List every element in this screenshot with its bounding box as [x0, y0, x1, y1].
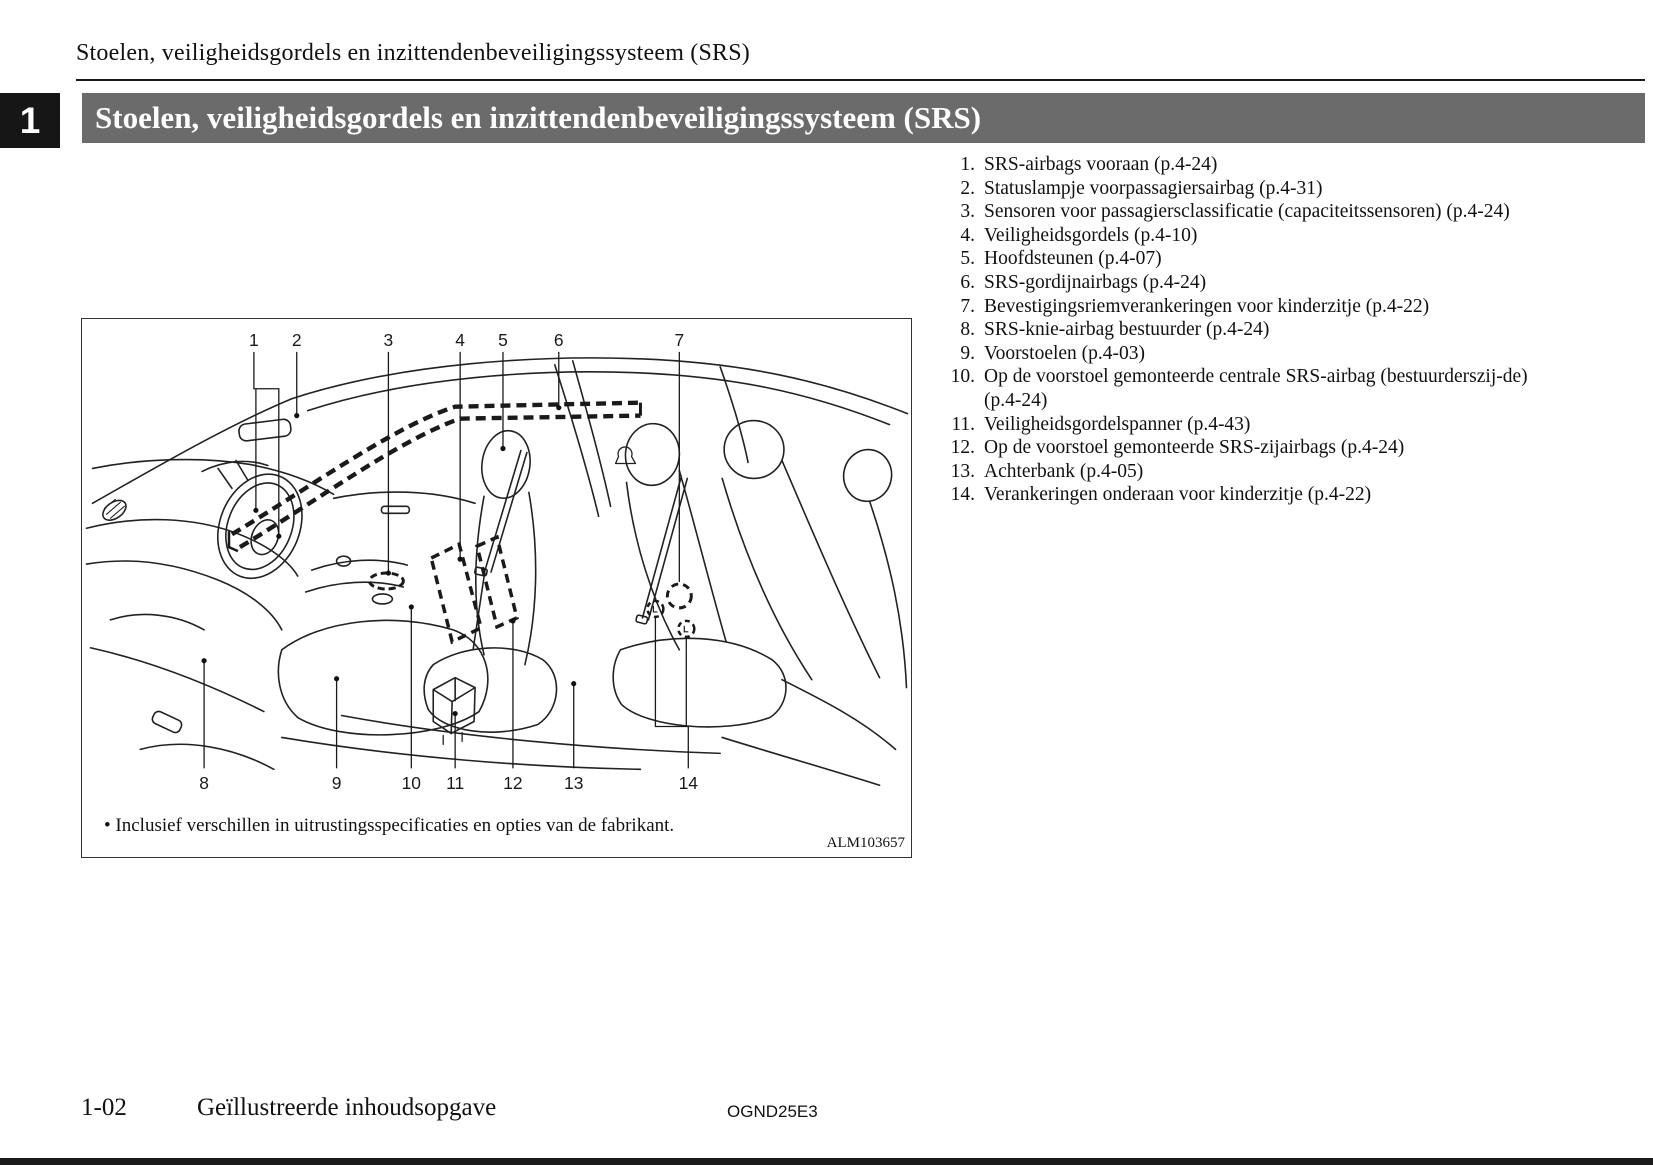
legend-num: 6. — [942, 271, 975, 295]
callout-1: 1 — [249, 330, 259, 350]
legend-text: Veiligheidsgordelspanner (p.4-43) — [984, 413, 1560, 437]
caption-bullet: • — [104, 815, 111, 836]
callout-3: 3 — [384, 330, 394, 350]
chapter-number: 1 — [20, 100, 41, 142]
legend-num: 11. — [942, 413, 975, 437]
legend-item-2: 2.Statuslampje voorpassagiersairbag (p.4… — [942, 177, 1560, 201]
legend-text: Op de voorstoel gemonteerde centrale SRS… — [984, 365, 1560, 412]
legend-num: 4. — [942, 224, 975, 248]
header-rule — [76, 79, 1645, 81]
legend-num: 7. — [942, 295, 975, 319]
callout-7: 7 — [674, 330, 684, 350]
callout-11: 11 — [446, 773, 464, 793]
legend-text: Statuslampje voorpassagiersairbag (p.4-3… — [984, 177, 1560, 201]
legend-num: 14. — [942, 483, 975, 507]
legend-item-1: 1.SRS-airbags vooraan (p.4-24) — [942, 153, 1560, 177]
legend-num: 2. — [942, 177, 975, 201]
legend-text: SRS-gordijnairbags (p.4-24) — [984, 271, 1560, 295]
callout-14: 14 — [679, 773, 699, 793]
legend-num: 12. — [942, 436, 975, 460]
callout-10: 10 — [402, 773, 422, 793]
legend-num: 5. — [942, 247, 975, 271]
callout-13: 13 — [564, 773, 583, 793]
footer-page-number: 1-02 — [81, 1094, 127, 1122]
running-header: Stoelen, veiligheidsgordels en inzittend… — [76, 40, 750, 67]
legend-item-5: 5.Hoofdsteunen (p.4-07) — [942, 247, 1560, 271]
legend-item-7: 7.Bevestigingsriemverankeringen voor kin… — [942, 295, 1560, 319]
legend-text: Voorstoelen (p.4-03) — [984, 342, 1560, 366]
legend-num: 3. — [942, 200, 975, 224]
legend-item-14: 14.Verankeringen onderaan voor kinderzit… — [942, 483, 1560, 507]
legend-item-9: 9.Voorstoelen (p.4-03) — [942, 342, 1560, 366]
car-interior-illustration: 1 2 3 4 5 6 7 8 9 10 11 12 13 14 — [82, 319, 911, 857]
callout-2: 2 — [292, 330, 302, 350]
legend-text: Hoofdsteunen (p.4-07) — [984, 247, 1560, 271]
legend-text: Op de voorstoel gemonteerde SRS-zijairba… — [984, 436, 1560, 460]
legend-text: Bevestigingsriemverankeringen voor kinde… — [984, 295, 1560, 319]
callout-numbers: 1 2 3 4 5 6 7 8 9 10 11 12 13 14 — [199, 330, 698, 793]
callout-9: 9 — [332, 773, 342, 793]
bottom-edge-bar — [0, 1158, 1653, 1165]
figure-caption: • Inclusief verschillen in uitrustingssp… — [104, 815, 674, 837]
section-title-banner: Stoelen, veiligheidsgordels en inzittend… — [82, 93, 1645, 143]
legend-list: 1.SRS-airbags vooraan (p.4-24) 2.Statusl… — [942, 153, 1560, 507]
callout-4: 4 — [455, 330, 465, 350]
legend-num: 13. — [942, 460, 975, 484]
legend-item-11: 11.Veiligheidsgordelspanner (p.4-43) — [942, 413, 1560, 437]
callout-6: 6 — [554, 330, 564, 350]
callout-leader-lines — [204, 352, 688, 768]
figure-box: 1 2 3 4 5 6 7 8 9 10 11 12 13 14 • Inclu… — [81, 318, 912, 858]
manual-page: Stoelen, veiligheidsgordels en inzittend… — [0, 0, 1653, 1165]
callout-5: 5 — [498, 330, 508, 350]
legend-item-3: 3.Sensoren voor passagiersclassificatie … — [942, 200, 1560, 224]
caption-text: Inclusief verschillen in uitrustingsspec… — [115, 815, 674, 836]
legend-item-8: 8.SRS-knie-airbag bestuurder (p.4-24) — [942, 318, 1560, 342]
legend-item-4: 4.Veiligheidsgordels (p.4-10) — [942, 224, 1560, 248]
airbag-dashed-markers — [229, 403, 694, 642]
legend-num: 9. — [942, 342, 975, 366]
legend-text: Verankeringen onderaan voor kinderzitje … — [984, 483, 1560, 507]
callout-8: 8 — [199, 773, 209, 793]
legend-text: Achterbank (p.4-05) — [984, 460, 1560, 484]
legend-text: SRS-knie-airbag bestuurder (p.4-24) — [984, 318, 1560, 342]
figure-code: ALM103657 — [827, 835, 905, 852]
legend-num: 8. — [942, 318, 975, 342]
legend-num: 1. — [942, 153, 975, 177]
legend-item-12: 12.Op de voorstoel gemonteerde SRS-zijai… — [942, 436, 1560, 460]
legend-text: SRS-airbags vooraan (p.4-24) — [984, 153, 1560, 177]
legend-text: Sensoren voor passagiersclassificatie (c… — [984, 200, 1560, 224]
chapter-tab: 1 — [0, 93, 60, 148]
legend-num: 10. — [942, 365, 975, 412]
car-lineart — [87, 358, 908, 785]
legend-text: Veiligheidsgordels (p.4-10) — [984, 224, 1560, 248]
legend-item-10: 10.Op de voorstoel gemonteerde centrale … — [942, 365, 1560, 412]
footer-section-title: Geïllustreerde inhoudsopgave — [197, 1094, 496, 1122]
footer-doc-code: OGND25E3 — [727, 1102, 818, 1122]
callout-12: 12 — [503, 773, 522, 793]
legend-item-13: 13.Achterbank (p.4-05) — [942, 460, 1560, 484]
legend-item-6: 6.SRS-gordijnairbags (p.4-24) — [942, 271, 1560, 295]
